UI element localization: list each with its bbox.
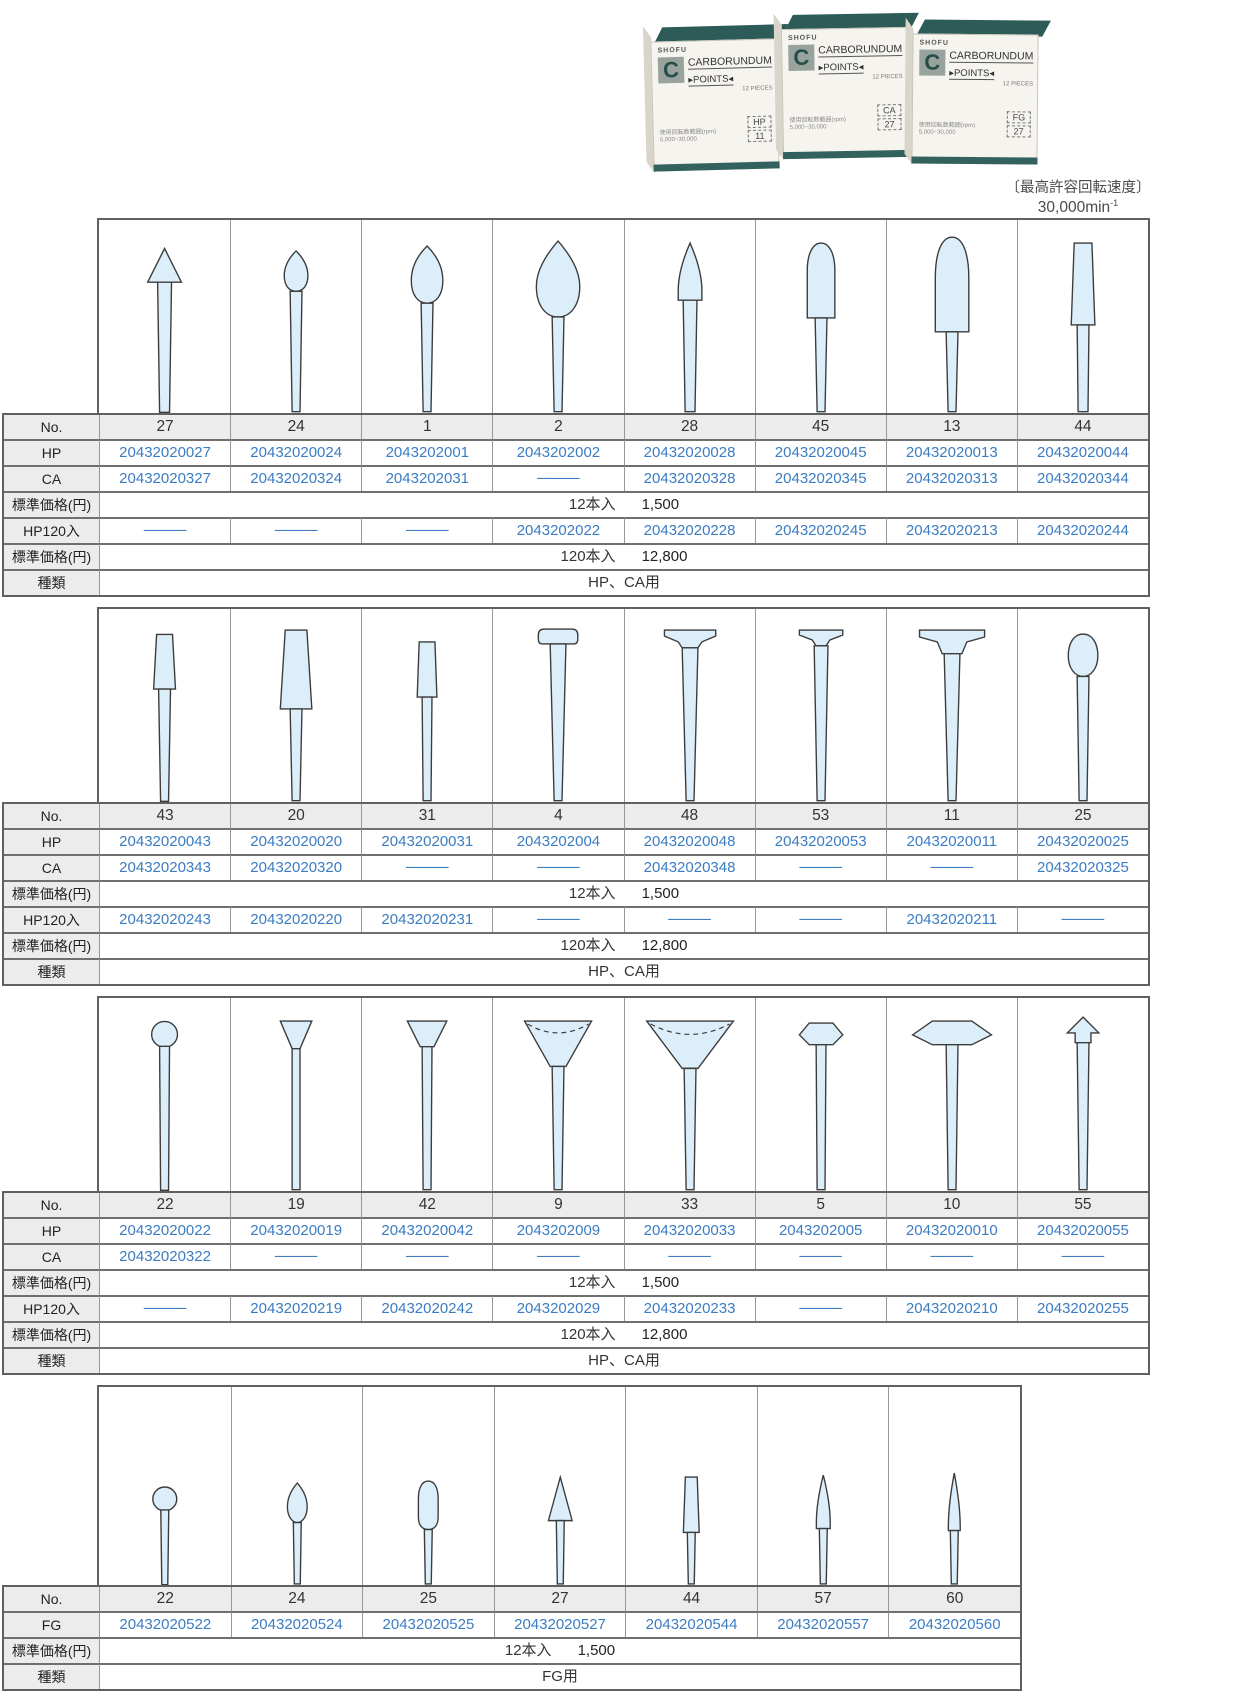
row-label-fg: FG: [4, 1611, 99, 1637]
box-face: SHOFUCCARBORUNDUM▸POINTS◂12 PIECES使用回転数範…: [781, 27, 909, 159]
hp120-cell-no43: 20432020243: [99, 906, 230, 932]
no-cell-no9: 9: [492, 1193, 623, 1217]
hp-cell-no48: 20432020048: [624, 828, 755, 854]
row-label-price120: 標準価格(円): [4, 1321, 99, 1347]
fg-cell-no24: 20432020524: [231, 1611, 363, 1637]
hp120-cell-no42: 20432020242: [361, 1295, 492, 1321]
pieces-label: 12 PIECES: [819, 74, 903, 81]
no-cell-no19: 19: [230, 1193, 361, 1217]
hp120-cell-no28: 20432020228: [624, 517, 755, 543]
ca-cell-no22: 20432020322: [99, 1243, 230, 1269]
data-grid: No.27241228451344HP204320200272043202002…: [2, 413, 1150, 597]
price-amount: 12,800: [642, 934, 688, 958]
type-tag: FG: [1007, 111, 1031, 123]
point-shape-teardrop-large: [492, 220, 623, 413]
row-label-hp120: HP120入: [4, 906, 99, 932]
hp-cell-no25: 20432020025: [1017, 828, 1148, 854]
point-shape-bud-small: [230, 220, 361, 413]
point-shape-ball: [99, 998, 230, 1191]
hp120-cell-no24: ────: [230, 517, 361, 543]
ca-cell-no48: 20432020348: [624, 854, 755, 880]
points-table-1: No.27241228451344HP204320200272043202002…: [2, 218, 1150, 597]
speed-range: 使用回転数範囲(rpm)5,000~30,000: [919, 123, 975, 137]
no-cell-no27: 27: [99, 415, 230, 439]
hp120-cell-no45: 20432020245: [755, 517, 886, 543]
hp-cell-no5: 2043202005: [755, 1217, 886, 1243]
speed-range: 使用回転数範囲(rpm)5,000~30,000: [789, 117, 846, 132]
pack-size: 120本入: [561, 934, 616, 958]
ca-cell-no11: ────: [886, 854, 1017, 880]
hp120-cell-no2: 2043202022: [492, 517, 623, 543]
hp120-cell-no5: ────: [755, 1295, 886, 1321]
no-cell-no53: 53: [755, 804, 886, 828]
point-shape-t-wide: [624, 609, 755, 802]
pack-size: 12本入: [569, 882, 616, 906]
pack-size: 12本入: [505, 1639, 552, 1663]
number-tag: 27: [877, 118, 901, 130]
price120-cell: 120本入12,800: [99, 1321, 1148, 1347]
row-label-hp120: HP120入: [4, 517, 99, 543]
price120-cell: 120本入12,800: [99, 543, 1148, 569]
c-logo-icon: C: [658, 57, 685, 84]
row-label-price120: 標準価格(円): [4, 932, 99, 958]
hp-cell-no9: 2043202009: [492, 1217, 623, 1243]
product-subname: ▸POINTS◂: [688, 74, 733, 87]
point-shape-taper-point-fg: [757, 1387, 889, 1585]
row-label-price12: 標準価格(円): [4, 880, 99, 906]
ca-cell-no10: ────: [886, 1243, 1017, 1269]
brand-label: SHOFU: [919, 40, 1031, 48]
price-amount: 1,500: [642, 882, 680, 906]
no-cell-no45: 45: [755, 415, 886, 439]
hp-cell-no53: 20432020053: [755, 828, 886, 854]
fg-cell-no25: 20432020525: [362, 1611, 494, 1637]
point-shape-flame: [624, 220, 755, 413]
no-cell-no22: 22: [99, 1193, 230, 1217]
hp120-cell-no19: 20432020219: [230, 1295, 361, 1321]
no-cell-no10: 10: [886, 1193, 1017, 1217]
max-speed-note: 〔最高許容回転速度〕 30,000min-1: [998, 176, 1158, 217]
row-label-kind: 種類: [4, 1663, 99, 1689]
ca-cell-no20: 20432020320: [230, 854, 361, 880]
kind-value: HP、CA用: [588, 571, 660, 595]
row-label-hp120: HP120入: [4, 1295, 99, 1321]
points-table-3: No.22194293351055HP204320200222043202001…: [2, 996, 1150, 1375]
price-amount: 1,500: [578, 1639, 616, 1663]
type-tag: CA: [877, 104, 901, 116]
box-face: SHOFUCCARBORUNDUM▸POINTS◂12 PIECES使用回転数範…: [650, 38, 779, 171]
c-logo-icon: C: [788, 45, 814, 71]
no-cell-no28: 28: [624, 415, 755, 439]
shape-row: [97, 607, 1150, 802]
brand-label: SHOFU: [788, 33, 900, 42]
kind-cell: HP、CA用: [99, 569, 1148, 595]
fg-cell-no44: 20432020544: [625, 1611, 757, 1637]
product-subname: ▸POINTS◂: [818, 62, 863, 75]
ca-cell-no43: 20432020343: [99, 854, 230, 880]
hp-cell-no4: 2043202004: [492, 828, 623, 854]
no-cell-no4: 4: [492, 804, 623, 828]
hp120-cell-no11: 20432020211: [886, 906, 1017, 932]
point-shape-taper-flat-fg: [625, 1387, 757, 1585]
kind-cell: HP、CA用: [99, 1347, 1148, 1373]
hp-cell-no10: 20432020010: [886, 1217, 1017, 1243]
ca-cell-no55: ────: [1017, 1243, 1148, 1269]
type-tag: HP: [747, 116, 771, 129]
point-shape-inverted-cone: [230, 998, 361, 1191]
hp-cell-no42: 20432020042: [361, 1217, 492, 1243]
no-cell-no44: 44: [625, 1587, 757, 1611]
ca-cell-no2: ────: [492, 465, 623, 491]
hp120-cell-no31: 20432020231: [361, 906, 492, 932]
hp-cell-no19: 20432020019: [230, 1217, 361, 1243]
point-shape-taper-flat-top: [1017, 220, 1148, 413]
catalog-page: SHOFUCCARBORUNDUM▸POINTS◂12 PIECES使用回転数範…: [0, 0, 1250, 1703]
hp-cell-no1: 2043202001: [361, 439, 492, 465]
point-shape-hexagon: [755, 998, 886, 1191]
kind-value: FG用: [542, 1665, 578, 1689]
hp120-cell-no10: 20432020210: [886, 1295, 1017, 1321]
ca-cell-no5: ────: [755, 1243, 886, 1269]
shape-row: [97, 1385, 1022, 1585]
point-shape-bud-long-fg: [362, 1387, 494, 1585]
product-photo: SHOFUCCARBORUNDUM▸POINTS◂12 PIECES使用回転数範…: [648, 18, 1048, 193]
row-label-ca: CA: [4, 1243, 99, 1269]
hp120-cell-no25: ────: [1017, 906, 1148, 932]
price120-cell: 120本入12,800: [99, 932, 1148, 958]
point-shape-cup: [492, 998, 623, 1191]
ca-cell-no25: 20432020325: [1017, 854, 1148, 880]
no-cell-no5: 5: [755, 1193, 886, 1217]
pack-size: 12本入: [569, 493, 616, 517]
hp-cell-no33: 20432020033: [624, 1217, 755, 1243]
ca-cell-no28: 20432020328: [624, 465, 755, 491]
point-shape-ball-small-fg: [99, 1387, 231, 1585]
number-tag: 27: [1007, 125, 1031, 137]
point-shape-cone-tip: [99, 220, 230, 413]
product-box-hp: SHOFUCCARBORUNDUM▸POINTS◂12 PIECES使用回転数範…: [650, 38, 779, 171]
points-table-2: No.432031448531125HP20432020043204320200…: [2, 607, 1150, 986]
point-shape-hexagon-wide: [886, 998, 1017, 1191]
hp-cell-no20: 20432020020: [230, 828, 361, 854]
row-label-price12: 標準価格(円): [4, 1637, 99, 1663]
pieces-label: 12 PIECES: [949, 81, 1033, 88]
no-cell-no22: 22: [99, 1587, 231, 1611]
point-shape-trapezoid: [230, 609, 361, 802]
price-amount: 1,500: [642, 493, 680, 517]
no-cell-no42: 42: [361, 1193, 492, 1217]
price12-cell: 12本入1,500: [99, 880, 1148, 906]
ca-cell-no27: 20432020327: [99, 465, 230, 491]
hp-cell-no27: 20432020027: [99, 439, 230, 465]
ca-cell-no13: 20432020313: [886, 465, 1017, 491]
row-label-price12: 標準価格(円): [4, 1269, 99, 1295]
point-shape-arrowhead: [1017, 998, 1148, 1191]
ca-cell-no45: 20432020345: [755, 465, 886, 491]
ca-cell-no24: 20432020324: [230, 465, 361, 491]
pack-size: 12本入: [569, 1271, 616, 1295]
max-speed-exponent: -1: [1110, 198, 1118, 208]
hp-cell-no13: 20432020013: [886, 439, 1017, 465]
pack-size: 120本入: [561, 1323, 616, 1347]
ca-cell-no1: 2043202031: [361, 465, 492, 491]
product-name: CARBORUNDUM: [818, 43, 902, 57]
row-label-price12: 標準価格(円): [4, 491, 99, 517]
no-cell-no55: 55: [1017, 1193, 1148, 1217]
point-shape-bullet: [755, 220, 886, 413]
point-shape-inverted-trapezoid: [361, 998, 492, 1191]
shape-row: [97, 996, 1150, 1191]
price-amount: 12,800: [642, 545, 688, 569]
hp-cell-no44: 20432020044: [1017, 439, 1148, 465]
hp-cell-no2: 2043202002: [492, 439, 623, 465]
hp-cell-no11: 20432020011: [886, 828, 1017, 854]
no-cell-no25: 25: [362, 1587, 494, 1611]
c-logo-icon: C: [919, 50, 945, 76]
point-shape-egg: [361, 220, 492, 413]
ca-cell-no53: ────: [755, 854, 886, 880]
number-tag: 11: [748, 130, 772, 143]
hp120-cell-no13: 20432020213: [886, 517, 1017, 543]
row-label-ca: CA: [4, 854, 99, 880]
price12-cell: 12本入1,500: [99, 1269, 1148, 1295]
data-grid: No.22194293351055HP204320200222043202001…: [2, 1191, 1150, 1375]
kind-cell: FG用: [99, 1663, 1020, 1689]
no-cell-no33: 33: [624, 1193, 755, 1217]
row-label-hp: HP: [4, 828, 99, 854]
data-grid: No.22242527445760FG204320205222043202052…: [2, 1585, 1022, 1691]
price-amount: 12,800: [642, 1323, 688, 1347]
point-shape-cup-wide: [624, 998, 755, 1191]
box-bottom-strip: [783, 150, 909, 159]
row-label-price120: 標準価格(円): [4, 543, 99, 569]
hp120-cell-no20: 20432020220: [230, 906, 361, 932]
row-label-ca: CA: [4, 465, 99, 491]
point-shape-taper-sharp-fg: [888, 1387, 1020, 1585]
point-shape-t-umbrella: [886, 609, 1017, 802]
hp-cell-no55: 20432020055: [1017, 1217, 1148, 1243]
hp120-cell-no48: ────: [624, 906, 755, 932]
point-shape-oval: [1017, 609, 1148, 802]
point-shape-taper-small: [99, 609, 230, 802]
pack-size: 120本入: [561, 545, 616, 569]
kind-cell: HP、CA用: [99, 958, 1148, 984]
hp120-cell-no55: 20432020255: [1017, 1295, 1148, 1321]
hp120-cell-no27: ────: [99, 517, 230, 543]
product-box-fg: SHOFUCCARBORUNDUM▸POINTS◂12 PIECES使用回転数範…: [911, 33, 1038, 164]
no-cell-no43: 43: [99, 804, 230, 828]
price12-cell: 12本入1,500: [99, 491, 1148, 517]
point-shape-torpedo: [886, 220, 1017, 413]
hp120-cell-no44: 20432020244: [1017, 517, 1148, 543]
fg-cell-no60: 20432020560: [888, 1611, 1020, 1637]
kind-value: HP、CA用: [588, 960, 660, 984]
row-label-kind: 種類: [4, 1347, 99, 1373]
brand-label: SHOFU: [657, 45, 769, 55]
max-speed-value: 30,000min-1: [998, 198, 1158, 217]
hp-cell-no28: 20432020028: [624, 439, 755, 465]
row-label-hp: HP: [4, 1217, 99, 1243]
no-cell-no60: 60: [888, 1587, 1020, 1611]
no-cell-no20: 20: [230, 804, 361, 828]
price-amount: 1,500: [642, 1271, 680, 1295]
ca-cell-no33: ────: [624, 1243, 755, 1269]
points-table-4: No.22242527445760FG204320205222043202052…: [2, 1385, 1022, 1691]
hp120-cell-no4: ────: [492, 906, 623, 932]
point-shape-cylinder-small: [361, 609, 492, 802]
tables-area: No.27241228451344HP204320200272043202002…: [0, 218, 1250, 1691]
no-cell-no57: 57: [757, 1587, 889, 1611]
hp120-cell-no33: 20432020233: [624, 1295, 755, 1321]
ca-cell-no4: ────: [492, 854, 623, 880]
no-cell-no13: 13: [886, 415, 1017, 439]
row-label-kind: 種類: [4, 569, 99, 595]
row-label-no: No.: [4, 1587, 99, 1611]
speed-range: 使用回転数範囲(rpm)5,000~30,000: [660, 129, 717, 144]
kind-value: HP、CA用: [588, 1349, 660, 1373]
ca-cell-no31: ────: [361, 854, 492, 880]
product-name: CARBORUNDUM: [949, 50, 1033, 64]
box-face: SHOFUCCARBORUNDUM▸POINTS◂12 PIECES使用回転数範…: [911, 33, 1038, 164]
ca-cell-no19: ────: [230, 1243, 361, 1269]
hp-cell-no22: 20432020022: [99, 1217, 230, 1243]
row-label-no: No.: [4, 415, 99, 439]
row-label-kind: 種類: [4, 958, 99, 984]
hp120-cell-no22: ────: [99, 1295, 230, 1321]
fg-cell-no27: 20432020527: [494, 1611, 626, 1637]
no-cell-no11: 11: [886, 804, 1017, 828]
hp-cell-no31: 20432020031: [361, 828, 492, 854]
no-cell-no31: 31: [361, 804, 492, 828]
hp120-cell-no9: 2043202029: [492, 1295, 623, 1321]
price12-cell: 12本入1,500: [99, 1637, 1020, 1663]
box-bottom-strip: [911, 156, 1037, 164]
data-grid: No.432031448531125HP20432020043204320200…: [2, 802, 1150, 986]
product-box-ca: SHOFUCCARBORUNDUM▸POINTS◂12 PIECES使用回転数範…: [781, 27, 909, 159]
row-label-no: No.: [4, 1193, 99, 1217]
product-name: CARBORUNDUM: [688, 54, 772, 69]
no-cell-no2: 2: [492, 415, 623, 439]
no-cell-no24: 24: [230, 415, 361, 439]
max-speed-label: 〔最高許容回転速度〕: [998, 176, 1158, 197]
ca-cell-no9: ────: [492, 1243, 623, 1269]
point-shape-t-thin: [755, 609, 886, 802]
hp-cell-no43: 20432020043: [99, 828, 230, 854]
no-cell-no25: 25: [1017, 804, 1148, 828]
no-cell-no24: 24: [231, 1587, 363, 1611]
point-shape-bud-fg: [231, 1387, 363, 1585]
hp-cell-no45: 20432020045: [755, 439, 886, 465]
shape-row: [97, 218, 1150, 413]
header: SHOFUCCARBORUNDUM▸POINTS◂12 PIECES使用回転数範…: [0, 0, 1250, 218]
no-cell-no48: 48: [624, 804, 755, 828]
hp-cell-no24: 20432020024: [230, 439, 361, 465]
ca-cell-no42: ────: [361, 1243, 492, 1269]
hp120-cell-no1: ────: [361, 517, 492, 543]
fg-cell-no22: 20432020522: [99, 1611, 231, 1637]
ca-cell-no44: 20432020344: [1017, 465, 1148, 491]
no-cell-no44: 44: [1017, 415, 1148, 439]
fg-cell-no57: 20432020557: [757, 1611, 889, 1637]
no-cell-no27: 27: [494, 1587, 626, 1611]
point-shape-cone-fg: [494, 1387, 626, 1585]
product-subname: ▸POINTS◂: [949, 68, 994, 80]
point-shape-t-rounded: [492, 609, 623, 802]
row-label-hp: HP: [4, 439, 99, 465]
no-cell-no1: 1: [361, 415, 492, 439]
pieces-label: 12 PIECES: [689, 85, 773, 93]
hp120-cell-no53: ────: [755, 906, 886, 932]
row-label-no: No.: [4, 804, 99, 828]
